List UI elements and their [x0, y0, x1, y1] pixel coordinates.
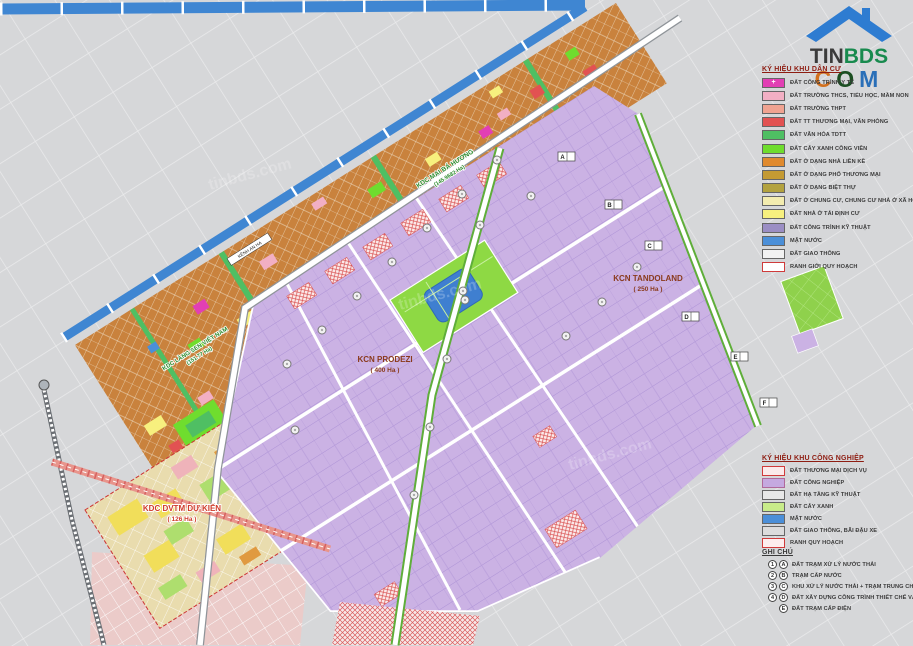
legend-swatch — [762, 466, 785, 476]
legend-swatch — [762, 196, 785, 206]
lot-marker: A — [558, 152, 575, 161]
legend-item: ĐẤT Ở DẠNG BIỆT THỰ — [762, 182, 912, 195]
note-item: EĐẤT TRẠM CẤP ĐIỆN — [762, 603, 912, 614]
roundabout-center — [294, 429, 296, 431]
roundabout-center — [446, 358, 448, 360]
residential-legend-items: +ĐẤT CÔNG TRÌNH Y TẾĐẤT TRƯỜNG THCS, TIỂ… — [762, 76, 912, 274]
roundabout-center — [464, 299, 466, 301]
legend-label: ĐẤT HẠ TẦNG KỸ THUẬT — [790, 492, 860, 498]
lot-marker: F — [760, 398, 777, 407]
legend-swatch — [762, 478, 785, 488]
lot-marker-letter: D — [684, 315, 689, 321]
legend-item: MẶT NƯỚC — [762, 234, 912, 247]
legend-label: ĐẤT TRƯỜNG THPT — [790, 106, 846, 112]
roundabout-center — [429, 426, 431, 428]
roundabout-center — [479, 224, 481, 226]
note-item: 3CKHU XỬ LÝ NƯỚC THẢI + TRẠM TRUNG CHUYỂ… — [762, 581, 912, 592]
notes-panel: GHI CHÚ 1AĐẤT TRẠM XỬ LÝ NƯỚC THẢI2BTRẠM… — [762, 549, 912, 614]
note-item: 4DĐẤT XÂY DỰNG CÔNG TRÌNH THIẾT CHẾ VĂN … — [762, 592, 912, 603]
note-label: ĐẤT TRẠM CẤP ĐIỆN — [792, 606, 851, 612]
legend-item: ĐẤT Ở CHUNG CƯ, CHUNG CƯ NHÀ Ở XÃ HỘI — [762, 195, 912, 208]
roundabout-center — [601, 301, 603, 303]
note-symbol-circle: 4 — [768, 593, 777, 602]
roundabout-center — [413, 494, 415, 496]
notes-title: GHI CHÚ — [762, 549, 912, 556]
legend-item: ĐẤT GIAO THÔNG — [762, 247, 912, 260]
legend-swatch — [762, 538, 785, 548]
legend-item: ĐẤT THƯƠNG MẠI DỊCH VỤ — [762, 465, 912, 477]
legend-swatch — [762, 502, 785, 512]
roundabout-center — [321, 329, 323, 331]
legend-label: MẶT NƯỚC — [790, 516, 822, 522]
kdc-dvtm-name: KDC DVTM DỰ KIẾN — [143, 503, 221, 513]
roundabout-center — [356, 295, 358, 297]
lot-marker: B — [605, 200, 622, 209]
industrial-legend: KÝ HIỆU KHU CÔNG NGHIỆP ĐẤT THƯƠNG MẠI D… — [762, 455, 912, 549]
legend-item: ĐẤT NHÀ Ở TÁI ĐỊNH CƯ — [762, 208, 912, 221]
legend-swatch — [762, 130, 785, 140]
kcn-tandoland-name: KCN TANDOLAND — [613, 274, 683, 283]
kcn-tandoland-area: ( 250 Ha ) — [634, 286, 663, 293]
lot-marker: D — [682, 312, 699, 321]
note-symbols: 3C — [762, 582, 788, 591]
note-symbols: 1A — [762, 560, 788, 569]
legend-item: ĐẤT TT THƯƠNG MẠI, VĂN PHÒNG — [762, 116, 912, 129]
legend-item: ĐẤT VĂN HÓA TDTT — [762, 129, 912, 142]
note-symbols: 4D — [762, 593, 788, 602]
note-symbol-circle: 3 — [768, 582, 777, 591]
notes-items: 1AĐẤT TRẠM XỬ LÝ NƯỚC THẢI2BTRẠM CẤP NƯỚ… — [762, 559, 912, 614]
planning-map-screenshot: KÊNH AN HẠ KCN PRODEZI ( 400 Ha ) KCN TA… — [0, 0, 913, 646]
kcn-prodezi-area: ( 400 Ha ) — [371, 367, 400, 374]
legend-swatch — [762, 104, 785, 114]
legend-swatch — [762, 209, 785, 219]
lot-marker: E — [731, 352, 748, 361]
legend-label: ĐẤT CÂY XANH — [790, 504, 833, 510]
legend-item: ĐẤT Ở DẠNG NHÀ LIỀN KỀ — [762, 155, 912, 168]
top-waterway — [0, 5, 585, 9]
legend-label: ĐẤT CÔNG TRÌNH KỸ THUẬT — [790, 225, 871, 231]
legend-swatch — [762, 223, 785, 233]
legend-item: ĐẤT GIAO THÔNG, BÃI ĐẬU XE — [762, 525, 912, 537]
legend-item: ĐẤT TRƯỜNG THCS, TIỂU HỌC, MẦM NON — [762, 89, 912, 102]
legend-item: RANH QUY HOẠCH — [762, 537, 912, 549]
legend-label: ĐẤT Ở DẠNG NHÀ LIỀN KỀ — [790, 159, 865, 165]
legend-swatch — [762, 236, 785, 246]
legend-swatch: + — [762, 78, 785, 88]
lot-marker-letter: A — [560, 155, 565, 161]
logo-tin: TIN — [810, 45, 844, 68]
legend-label: ĐẤT NHÀ Ở TÁI ĐỊNH CƯ — [790, 211, 860, 217]
legend-swatch — [762, 262, 785, 272]
legend-label: ĐẤT CÔNG NGHIỆP — [790, 480, 844, 486]
legend-label: ĐẤT Ở DẠNG BIỆT THỰ — [790, 185, 856, 191]
lot-marker-letter: B — [607, 203, 612, 209]
legend-label: ĐẤT Ở CHUNG CƯ, CHUNG CƯ NHÀ Ở XÃ HỘI — [790, 198, 913, 204]
legend-label: ĐẤT CÔNG TRÌNH Y TẾ — [790, 80, 854, 86]
legend-swatch — [762, 490, 785, 500]
legend-item: ĐẤT CÂY XANH — [762, 501, 912, 513]
note-symbol-circle: 2 — [768, 571, 777, 580]
lot-marker-letter: F — [763, 401, 767, 407]
note-symbol-circle: B — [779, 571, 788, 580]
industrial-legend-items: ĐẤT THƯƠNG MẠI DỊCH VỤĐẤT CÔNG NGHIỆPĐẤT… — [762, 465, 912, 549]
note-item: 1AĐẤT TRẠM XỬ LÝ NƯỚC THẢI — [762, 559, 912, 570]
kdc-dvtm-area: ( 126 Ha ) — [168, 516, 197, 523]
legend-item: ĐẤT CÂY XANH CÔNG VIÊN — [762, 142, 912, 155]
roundabout-center — [496, 159, 498, 161]
roundabout-center — [461, 193, 463, 195]
logo-line1: TINBDS — [810, 46, 888, 67]
legend-swatch — [762, 144, 785, 154]
note-symbol-circle: 1 — [768, 560, 777, 569]
legend-swatch — [762, 170, 785, 180]
roundabout-center — [426, 227, 428, 229]
legend-label: RANH GIỚI QUY HOẠCH — [790, 264, 857, 270]
roundabout-center — [391, 261, 393, 263]
residential-legend-title: KÝ HIỆU KHU DÂN CƯ — [762, 66, 912, 73]
note-symbols: E — [762, 604, 788, 613]
legend-label: ĐẤT CÂY XANH CÔNG VIÊN — [790, 146, 867, 152]
note-symbol-circle: E — [779, 604, 788, 613]
legend-swatch — [762, 91, 785, 101]
roundabout-center — [636, 266, 638, 268]
industrial-legend-title: KÝ HIỆU KHU CÔNG NGHIỆP — [762, 455, 912, 462]
legend-item: ĐẤT TRƯỜNG THPT — [762, 102, 912, 115]
roundabout-center — [530, 195, 532, 197]
legend-item: RANH GIỚI QUY HOẠCH — [762, 261, 912, 274]
residential-legend: KÝ HIỆU KHU DÂN CƯ +ĐẤT CÔNG TRÌNH Y TẾĐ… — [762, 66, 912, 274]
logo-bds: BDS — [844, 45, 888, 68]
lot-marker: C — [645, 241, 662, 250]
legend-item: ĐẤT CÔNG NGHIỆP — [762, 477, 912, 489]
note-symbol-circle: A — [779, 560, 788, 569]
legend-swatch — [762, 157, 785, 167]
note-symbols: 2B — [762, 571, 788, 580]
legend-item: ĐẤT HẠ TẦNG KỸ THUẬT — [762, 489, 912, 501]
kcn-prodezi-name: KCN PRODEZI — [357, 355, 412, 364]
note-symbol-circle: D — [779, 593, 788, 602]
legend-label: ĐẤT GIAO THÔNG, BÃI ĐẬU XE — [790, 528, 877, 534]
legend-swatch — [762, 526, 785, 536]
legend-label: ĐẤT THƯƠNG MẠI DỊCH VỤ — [790, 468, 867, 474]
note-label: KHU XỬ LÝ NƯỚC THẢI + TRẠM TRUNG CHUYỂN … — [792, 584, 913, 590]
note-symbol-circle: C — [779, 582, 788, 591]
note-label: ĐẤT XÂY DỰNG CÔNG TRÌNH THIẾT CHẾ VĂN HÓ… — [792, 595, 913, 601]
legend-label: RANH QUY HOẠCH — [790, 540, 843, 546]
note-item: 2BTRẠM CẤP NƯỚC — [762, 570, 912, 581]
roundabout-center — [462, 290, 464, 292]
roundabout-center — [286, 363, 288, 365]
legend-swatch — [762, 183, 785, 193]
legend-label: MẶT NƯỚC — [790, 238, 822, 244]
house-icon — [806, 6, 892, 46]
legend-item: ĐẤT CÔNG TRÌNH KỸ THUẬT — [762, 221, 912, 234]
legend-label: ĐẤT GIAO THÔNG — [790, 251, 841, 257]
roundabout-center — [565, 335, 567, 337]
note-label: TRẠM CẤP NƯỚC — [792, 573, 842, 579]
legend-label: ĐẤT VĂN HÓA TDTT — [790, 132, 846, 138]
legend-label: ĐẤT Ở DẠNG PHỐ THƯƠNG MẠI — [790, 172, 881, 178]
legend-swatch — [762, 514, 785, 524]
legend-label: ĐẤT TT THƯƠNG MẠI, VĂN PHÒNG — [790, 119, 888, 125]
note-label: ĐẤT TRẠM XỬ LÝ NƯỚC THẢI — [792, 562, 876, 568]
lot-marker-letter: C — [647, 244, 652, 250]
legend-swatch — [762, 249, 785, 259]
legend-item: MẶT NƯỚC — [762, 513, 912, 525]
legend-item: +ĐẤT CÔNG TRÌNH Y TẾ — [762, 76, 912, 89]
legend-label: ĐẤT TRƯỜNG THCS, TIỂU HỌC, MẦM NON — [790, 93, 909, 99]
legend-item: ĐẤT Ở DẠNG PHỐ THƯƠNG MẠI — [762, 168, 912, 181]
legend-swatch — [762, 117, 785, 127]
lot-marker-letter: E — [733, 355, 737, 361]
